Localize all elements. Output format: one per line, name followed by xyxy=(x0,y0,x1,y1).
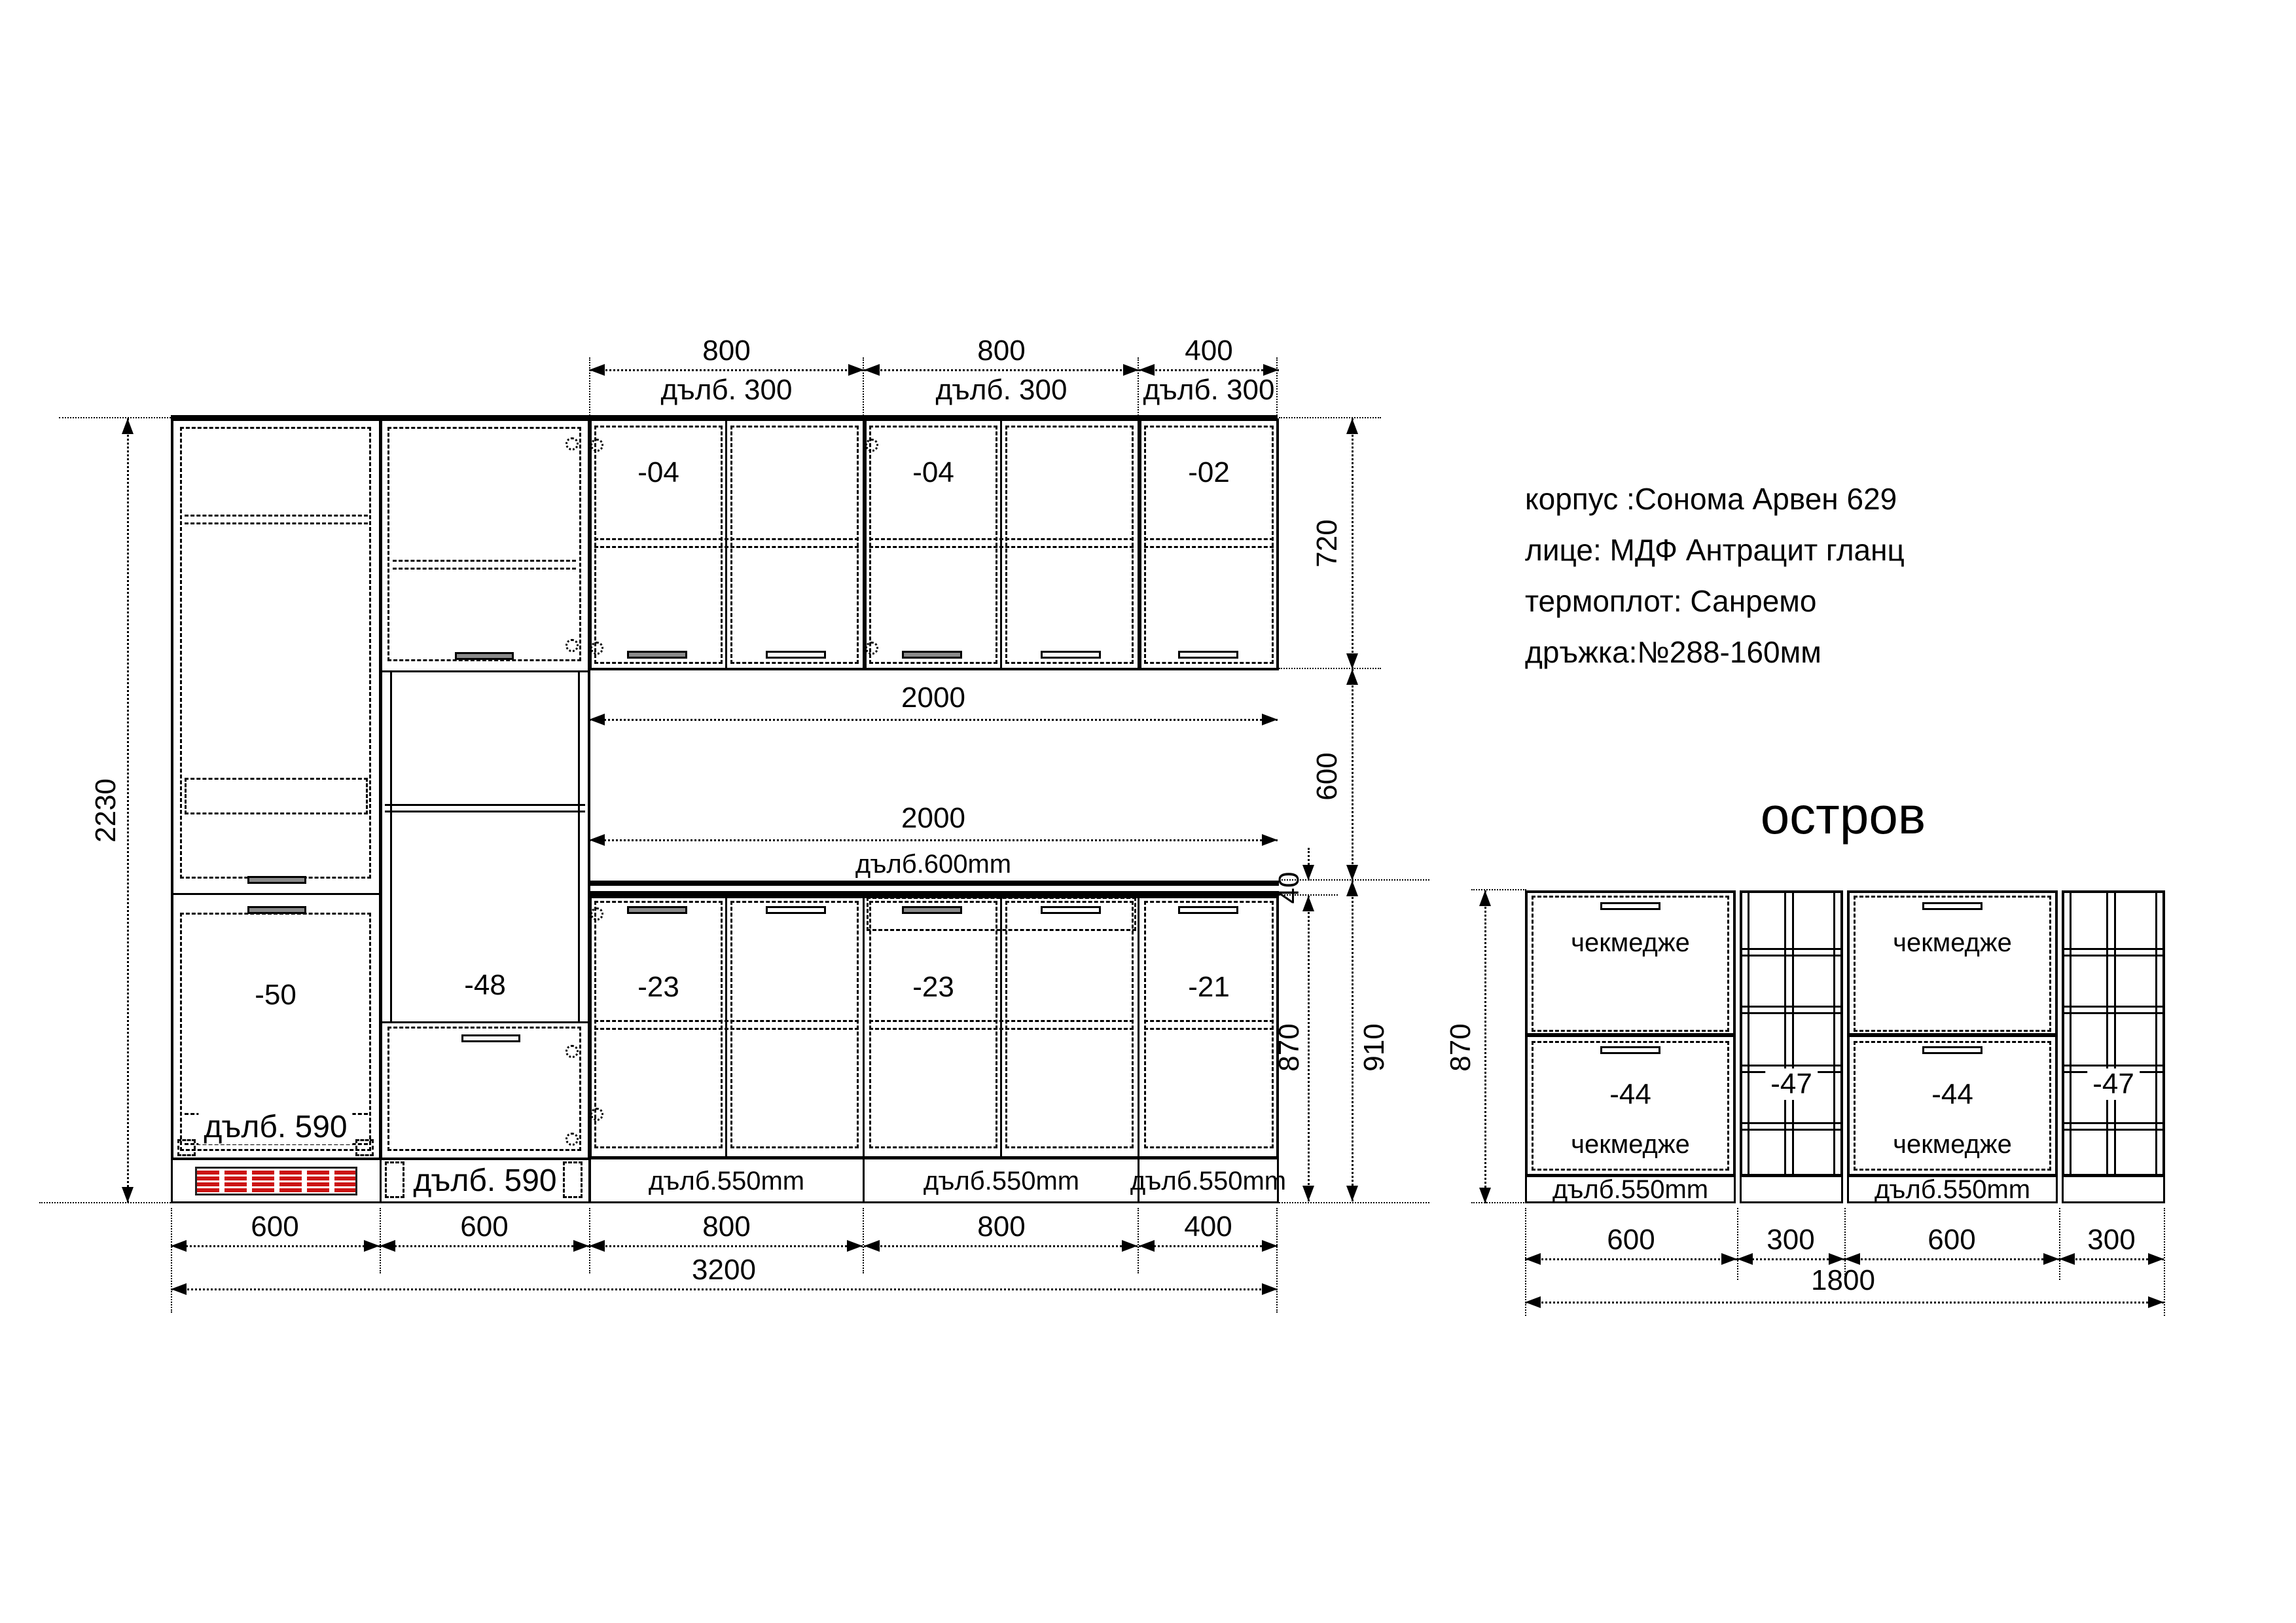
upper-door xyxy=(1005,426,1134,664)
door-divider xyxy=(1000,418,1002,670)
drawer-handle xyxy=(1922,902,1982,910)
drawer-label: чекмедже xyxy=(1571,930,1690,956)
spec-line-lice: лице: МДФ Антрацит гланц xyxy=(1525,535,1905,565)
dim-line xyxy=(380,1245,589,1247)
dim-label: 800 xyxy=(702,1213,750,1241)
ext-line xyxy=(1276,1208,1278,1313)
drawer-front xyxy=(1532,896,1729,1032)
niche-divider xyxy=(385,811,585,812)
dim-label: 720 xyxy=(1313,519,1342,567)
drawer-label: чекмедже xyxy=(1893,930,2012,956)
dim-label: 400 xyxy=(1184,1213,1232,1241)
sink-outline xyxy=(867,897,1136,931)
door-handle xyxy=(455,652,514,660)
dim-line xyxy=(589,1245,863,1247)
rack-shelf xyxy=(2062,1129,2165,1131)
foot-mark xyxy=(177,1139,196,1156)
dim-line xyxy=(589,719,1278,721)
dim-label: 800 xyxy=(977,1213,1025,1241)
hinge-mark xyxy=(565,1133,579,1146)
rack-shelf xyxy=(1740,1012,1843,1014)
shelf-line xyxy=(594,1020,859,1022)
dim-label: 600 xyxy=(460,1213,508,1241)
tall-cabinet-2-bottom-door xyxy=(387,1027,581,1151)
dim-label: 2230 xyxy=(92,778,120,843)
rack-center xyxy=(2106,890,2108,1175)
hinge-mark xyxy=(590,907,603,921)
drawer-divider xyxy=(1847,1033,2058,1037)
depth-label: дълб.550mm xyxy=(649,1168,804,1194)
dim-label: 1800 xyxy=(1811,1266,1875,1295)
rack-shelf xyxy=(2062,1006,2165,1008)
ext-line xyxy=(39,1202,171,1203)
hinge-mark xyxy=(590,642,603,655)
dim-label: 2000 xyxy=(901,804,965,833)
dim-line xyxy=(2059,1258,2164,1260)
hinge-mark xyxy=(565,639,579,652)
rack-center xyxy=(2114,890,2116,1175)
dim-label: 600 xyxy=(1928,1226,1975,1254)
shelf-line xyxy=(1144,538,1274,540)
shelf-line xyxy=(185,522,368,524)
rack-side xyxy=(1833,890,1835,1175)
rack-shelf xyxy=(1740,1122,1843,1124)
door-handle xyxy=(461,1034,520,1042)
depth-label: дълб.550mm xyxy=(924,1168,1079,1194)
dim-line xyxy=(864,1245,1138,1247)
dim-line xyxy=(1352,418,1354,669)
dim-line xyxy=(1525,1258,1737,1260)
door-divider xyxy=(725,896,727,1159)
shelf-line xyxy=(594,1028,859,1030)
dim-line xyxy=(171,1288,1278,1290)
dim-label: 600 xyxy=(1313,752,1342,800)
rack-shelf xyxy=(2062,1012,2165,1014)
dim-label: 800 xyxy=(702,337,750,365)
cabinet-label: -02 xyxy=(1188,458,1230,487)
dim-label: 300 xyxy=(1767,1226,1814,1254)
rack-side xyxy=(2155,890,2157,1175)
dim-label: 2000 xyxy=(901,684,965,712)
ext-line xyxy=(1279,668,1381,669)
door-handle xyxy=(1178,651,1238,659)
shelf-line xyxy=(393,568,576,570)
dim-line xyxy=(1308,848,1310,881)
rack-shelf xyxy=(2062,955,2165,957)
base-door xyxy=(1005,901,1134,1148)
hinge-mark xyxy=(865,439,878,452)
drawer-handle xyxy=(1600,1046,1660,1054)
door-handle xyxy=(247,876,306,884)
niche-divider xyxy=(385,804,585,806)
shelf-line xyxy=(869,538,1134,540)
depth-label: дълб.550mm xyxy=(1874,1176,2030,1203)
shelf-line xyxy=(185,515,368,517)
dim-label: 300 xyxy=(2087,1226,2135,1254)
foot-mark xyxy=(563,1161,583,1198)
base-door xyxy=(730,901,859,1148)
cabinet-label: -04 xyxy=(912,458,954,487)
door-handle xyxy=(902,906,962,914)
island-plinth xyxy=(2062,1175,2165,1203)
ext-line xyxy=(1737,1208,1738,1280)
drawer-handle xyxy=(1600,902,1660,910)
cabinet-label: -47 xyxy=(1765,1068,1818,1100)
unit-divider xyxy=(1138,896,1139,1159)
door-divider xyxy=(1000,896,1002,1159)
rack-shelf xyxy=(2062,1122,2165,1124)
door-handle xyxy=(627,906,687,914)
rack-side xyxy=(1748,890,1749,1175)
ext-line xyxy=(2164,1208,2165,1316)
drawer-handle xyxy=(1922,1046,1982,1054)
ext-line xyxy=(1279,417,1381,418)
hinge-mark xyxy=(590,1108,603,1121)
depth-label: дълб. 300 xyxy=(936,376,1067,405)
dim-line xyxy=(1352,881,1354,1201)
base-door xyxy=(1144,901,1274,1148)
ext-line xyxy=(59,417,171,418)
ext-line xyxy=(171,1208,172,1313)
unit-divider xyxy=(863,896,865,1159)
countertop xyxy=(589,881,1279,896)
cabinet-label: -21 xyxy=(1188,973,1230,1002)
foot-mark xyxy=(385,1161,404,1198)
depth-label: дълб. 300 xyxy=(1143,376,1275,405)
depth-label: дълб.550mm xyxy=(1552,1176,1708,1203)
cabinet-label: -23 xyxy=(637,973,679,1002)
dim-line xyxy=(864,369,1139,371)
island-wine-rack-1 xyxy=(1740,890,1843,1176)
shelf-line xyxy=(1144,1020,1274,1022)
dim-label: 400 xyxy=(1185,337,1232,365)
shelf-line xyxy=(1144,1028,1274,1030)
rack-center xyxy=(1784,890,1786,1175)
niche-side-panel xyxy=(390,670,392,1023)
drawer-label: чекмедже xyxy=(1571,1131,1690,1158)
tall-cabinet-1-divider xyxy=(171,893,382,895)
niche-side-panel xyxy=(578,670,580,1023)
dim-label: 40 xyxy=(1275,872,1304,904)
door-handle xyxy=(1041,906,1101,914)
drawer-front xyxy=(1854,896,2051,1032)
tall-cabinet-2-top-door xyxy=(387,427,581,661)
ext-line xyxy=(2059,1208,2060,1280)
dim-label: 800 xyxy=(977,337,1025,365)
rack-shelf xyxy=(1740,1065,1843,1067)
rack-shelf xyxy=(2062,948,2165,950)
dim-line xyxy=(127,418,129,1203)
plinth-vent-grille xyxy=(195,1167,357,1195)
niche-bottom-line xyxy=(380,1021,590,1023)
foot-mark xyxy=(355,1139,374,1156)
dim-label: 870 xyxy=(1275,1023,1304,1071)
island-wine-rack-2 xyxy=(2062,890,2165,1176)
rack-shelf xyxy=(1740,955,1843,957)
drawer-divider xyxy=(1525,1033,1736,1037)
drawer-label: чекмедже xyxy=(1893,1131,2012,1158)
depth-label: дълб.600mm xyxy=(855,851,1011,877)
shelf-line xyxy=(1144,546,1274,548)
hinge-mark xyxy=(565,1045,579,1058)
depth-label: дълб. 590 xyxy=(408,1164,562,1198)
dim-line xyxy=(1139,369,1279,371)
depth-label: дълб. 300 xyxy=(661,376,793,405)
base-door xyxy=(869,901,997,1148)
door-handle xyxy=(627,651,687,659)
door-divider xyxy=(725,418,727,670)
dim-line xyxy=(1844,1258,2059,1260)
cabinet-label: -23 xyxy=(912,973,954,1002)
technical-drawing-canvas: -50 дълб. 590 -48 дълб. 590 -04 xyxy=(0,0,2296,1623)
dim-label: 600 xyxy=(251,1213,298,1241)
shelf-line xyxy=(869,546,1134,548)
dim-line xyxy=(589,369,864,371)
hinge-mark xyxy=(590,439,603,452)
door-handle xyxy=(1041,651,1101,659)
cabinet-label: -48 xyxy=(464,971,506,1000)
door-handle xyxy=(1178,906,1238,914)
rack-shelf xyxy=(2062,1065,2165,1067)
rack-shelf xyxy=(1740,1129,1843,1131)
island-plinth xyxy=(1740,1175,1843,1203)
cabinet-label: -04 xyxy=(637,458,679,487)
shelf-line xyxy=(869,1028,1134,1030)
dim-label: 3200 xyxy=(692,1256,756,1285)
spec-line-termoplot: термоплот: Санремо xyxy=(1525,586,1817,616)
dim-line xyxy=(1308,896,1310,1201)
rack-shelf xyxy=(1740,948,1843,950)
shelf-line xyxy=(393,560,576,562)
hinge-mark xyxy=(565,437,579,450)
rack-side xyxy=(2070,890,2072,1175)
internal-drawer-outline xyxy=(185,778,368,814)
depth-label: дълб. 590 xyxy=(198,1110,352,1144)
cabinet-label: -44 xyxy=(1609,1080,1651,1109)
shelf-line xyxy=(869,1020,1134,1022)
door-handle xyxy=(902,651,962,659)
dim-line xyxy=(1737,1258,1844,1260)
dim-line xyxy=(1484,890,1486,1203)
rack-shelf xyxy=(1740,1006,1843,1008)
cabinet-label: -47 xyxy=(2087,1068,2140,1100)
base-door xyxy=(594,901,723,1148)
niche-top-line xyxy=(380,670,590,672)
dim-line xyxy=(1525,1302,2164,1304)
dim-line xyxy=(171,1245,380,1247)
rack-center xyxy=(1792,890,1794,1175)
dim-label: 870 xyxy=(1446,1023,1475,1071)
door-handle xyxy=(766,651,826,659)
shelf-line xyxy=(594,538,859,540)
upper-cabinet-bottom-line xyxy=(589,668,1279,670)
door-handle xyxy=(766,906,826,914)
plinth-divider xyxy=(863,1158,865,1203)
spec-line-drazhka: дръжка:№288-160мм xyxy=(1525,637,1821,667)
upper-door xyxy=(730,426,859,664)
depth-label: дълб.550mm xyxy=(1130,1168,1286,1194)
island-title: остров xyxy=(1761,790,1926,842)
ext-line xyxy=(1279,1202,1429,1203)
dim-label: 910 xyxy=(1360,1023,1389,1071)
spec-line-korpus: корпус :Сонома Арвен 629 xyxy=(1525,484,1897,514)
dim-label: 600 xyxy=(1607,1226,1655,1254)
hinge-mark xyxy=(865,642,878,655)
dim-line xyxy=(1139,1245,1278,1247)
cabinet-label: -44 xyxy=(1931,1080,1973,1109)
dim-line xyxy=(589,839,1278,841)
dim-line xyxy=(1352,669,1354,881)
cabinet-label: -50 xyxy=(255,981,296,1010)
shelf-line xyxy=(594,546,859,548)
